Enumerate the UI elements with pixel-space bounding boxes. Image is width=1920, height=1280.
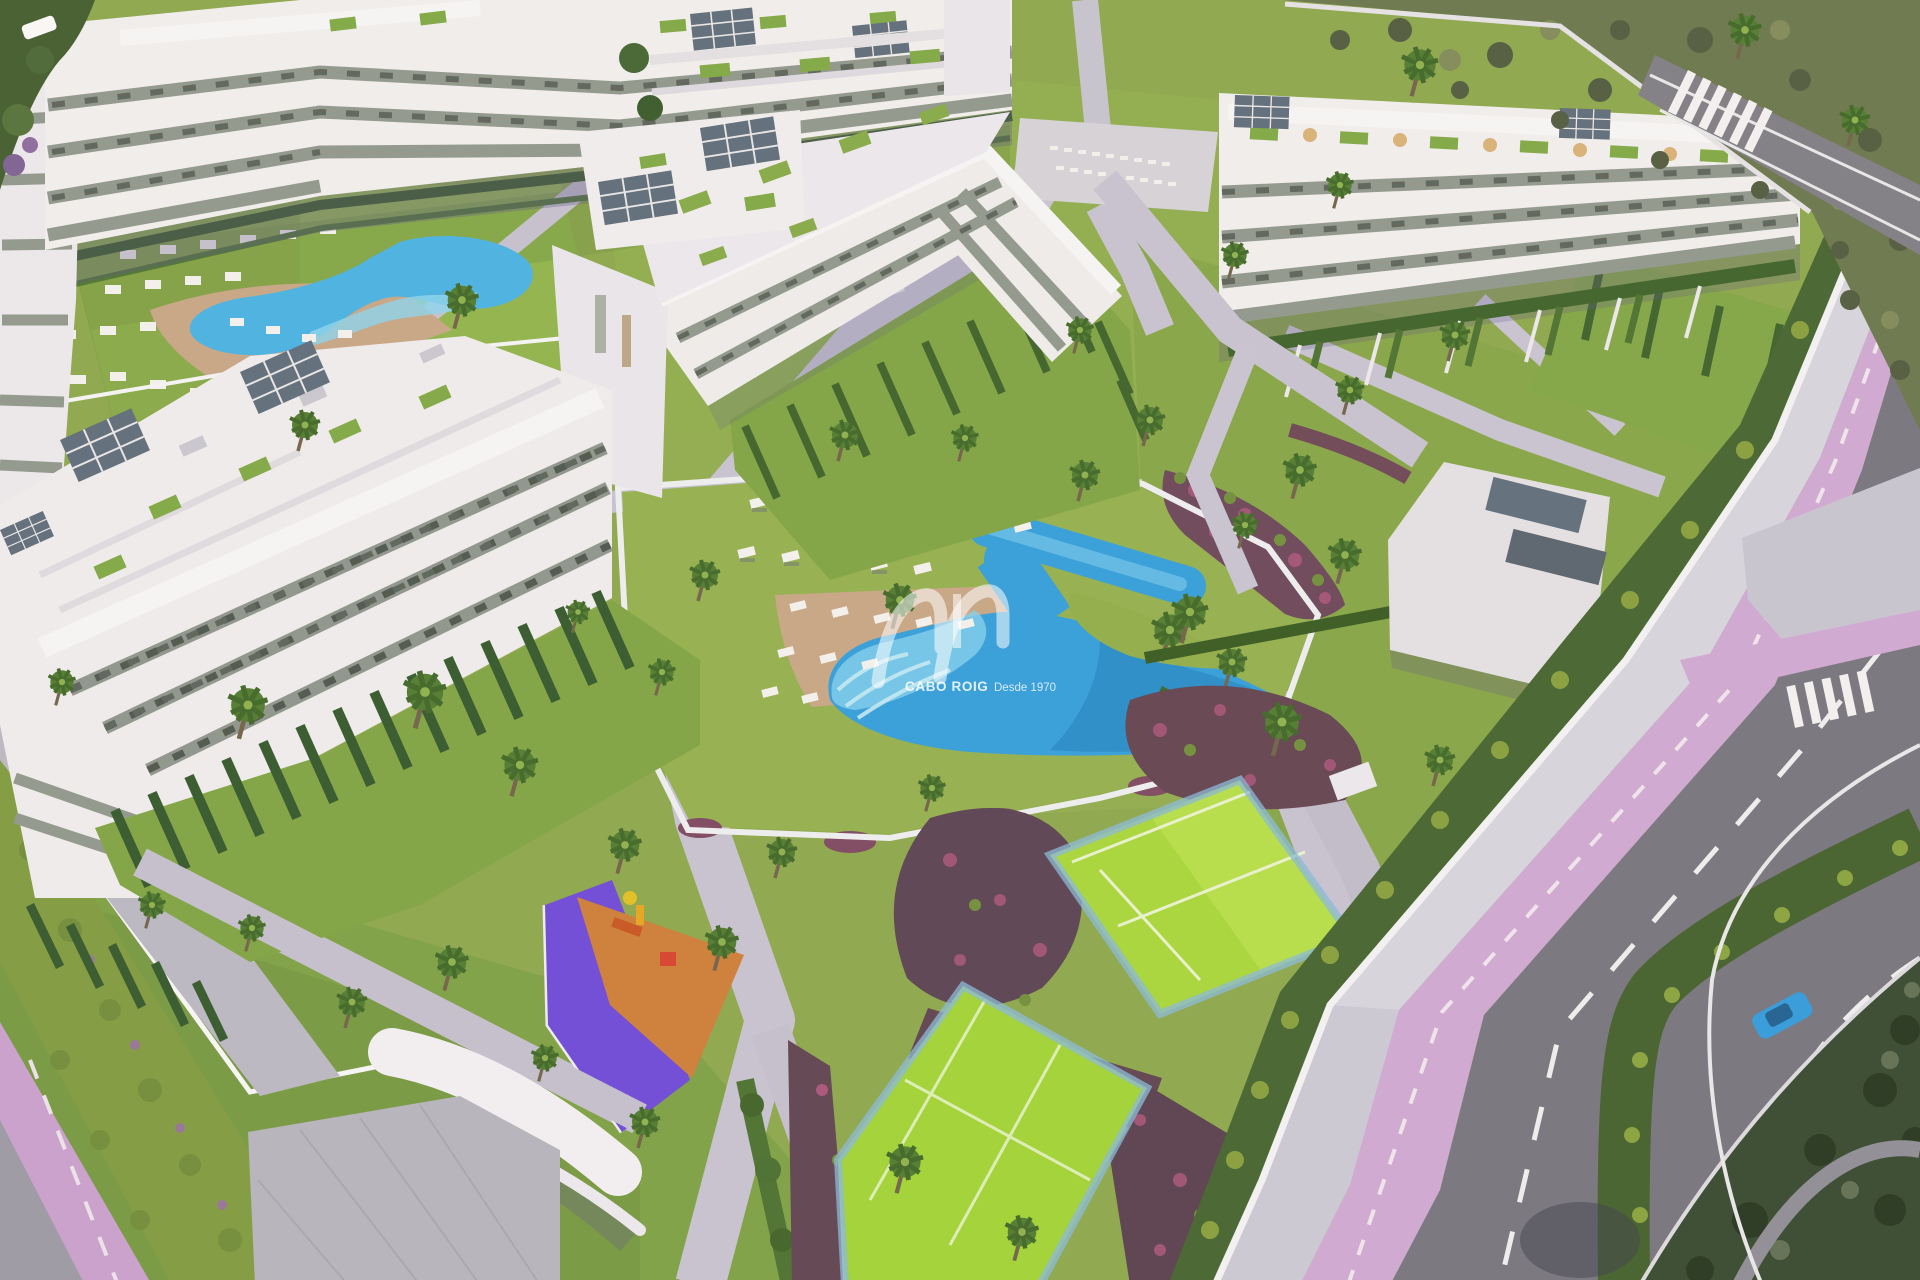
svg-text:CABO ROIG: CABO ROIG	[905, 679, 988, 694]
svg-text:Desde 1970: Desde 1970	[994, 682, 1056, 694]
